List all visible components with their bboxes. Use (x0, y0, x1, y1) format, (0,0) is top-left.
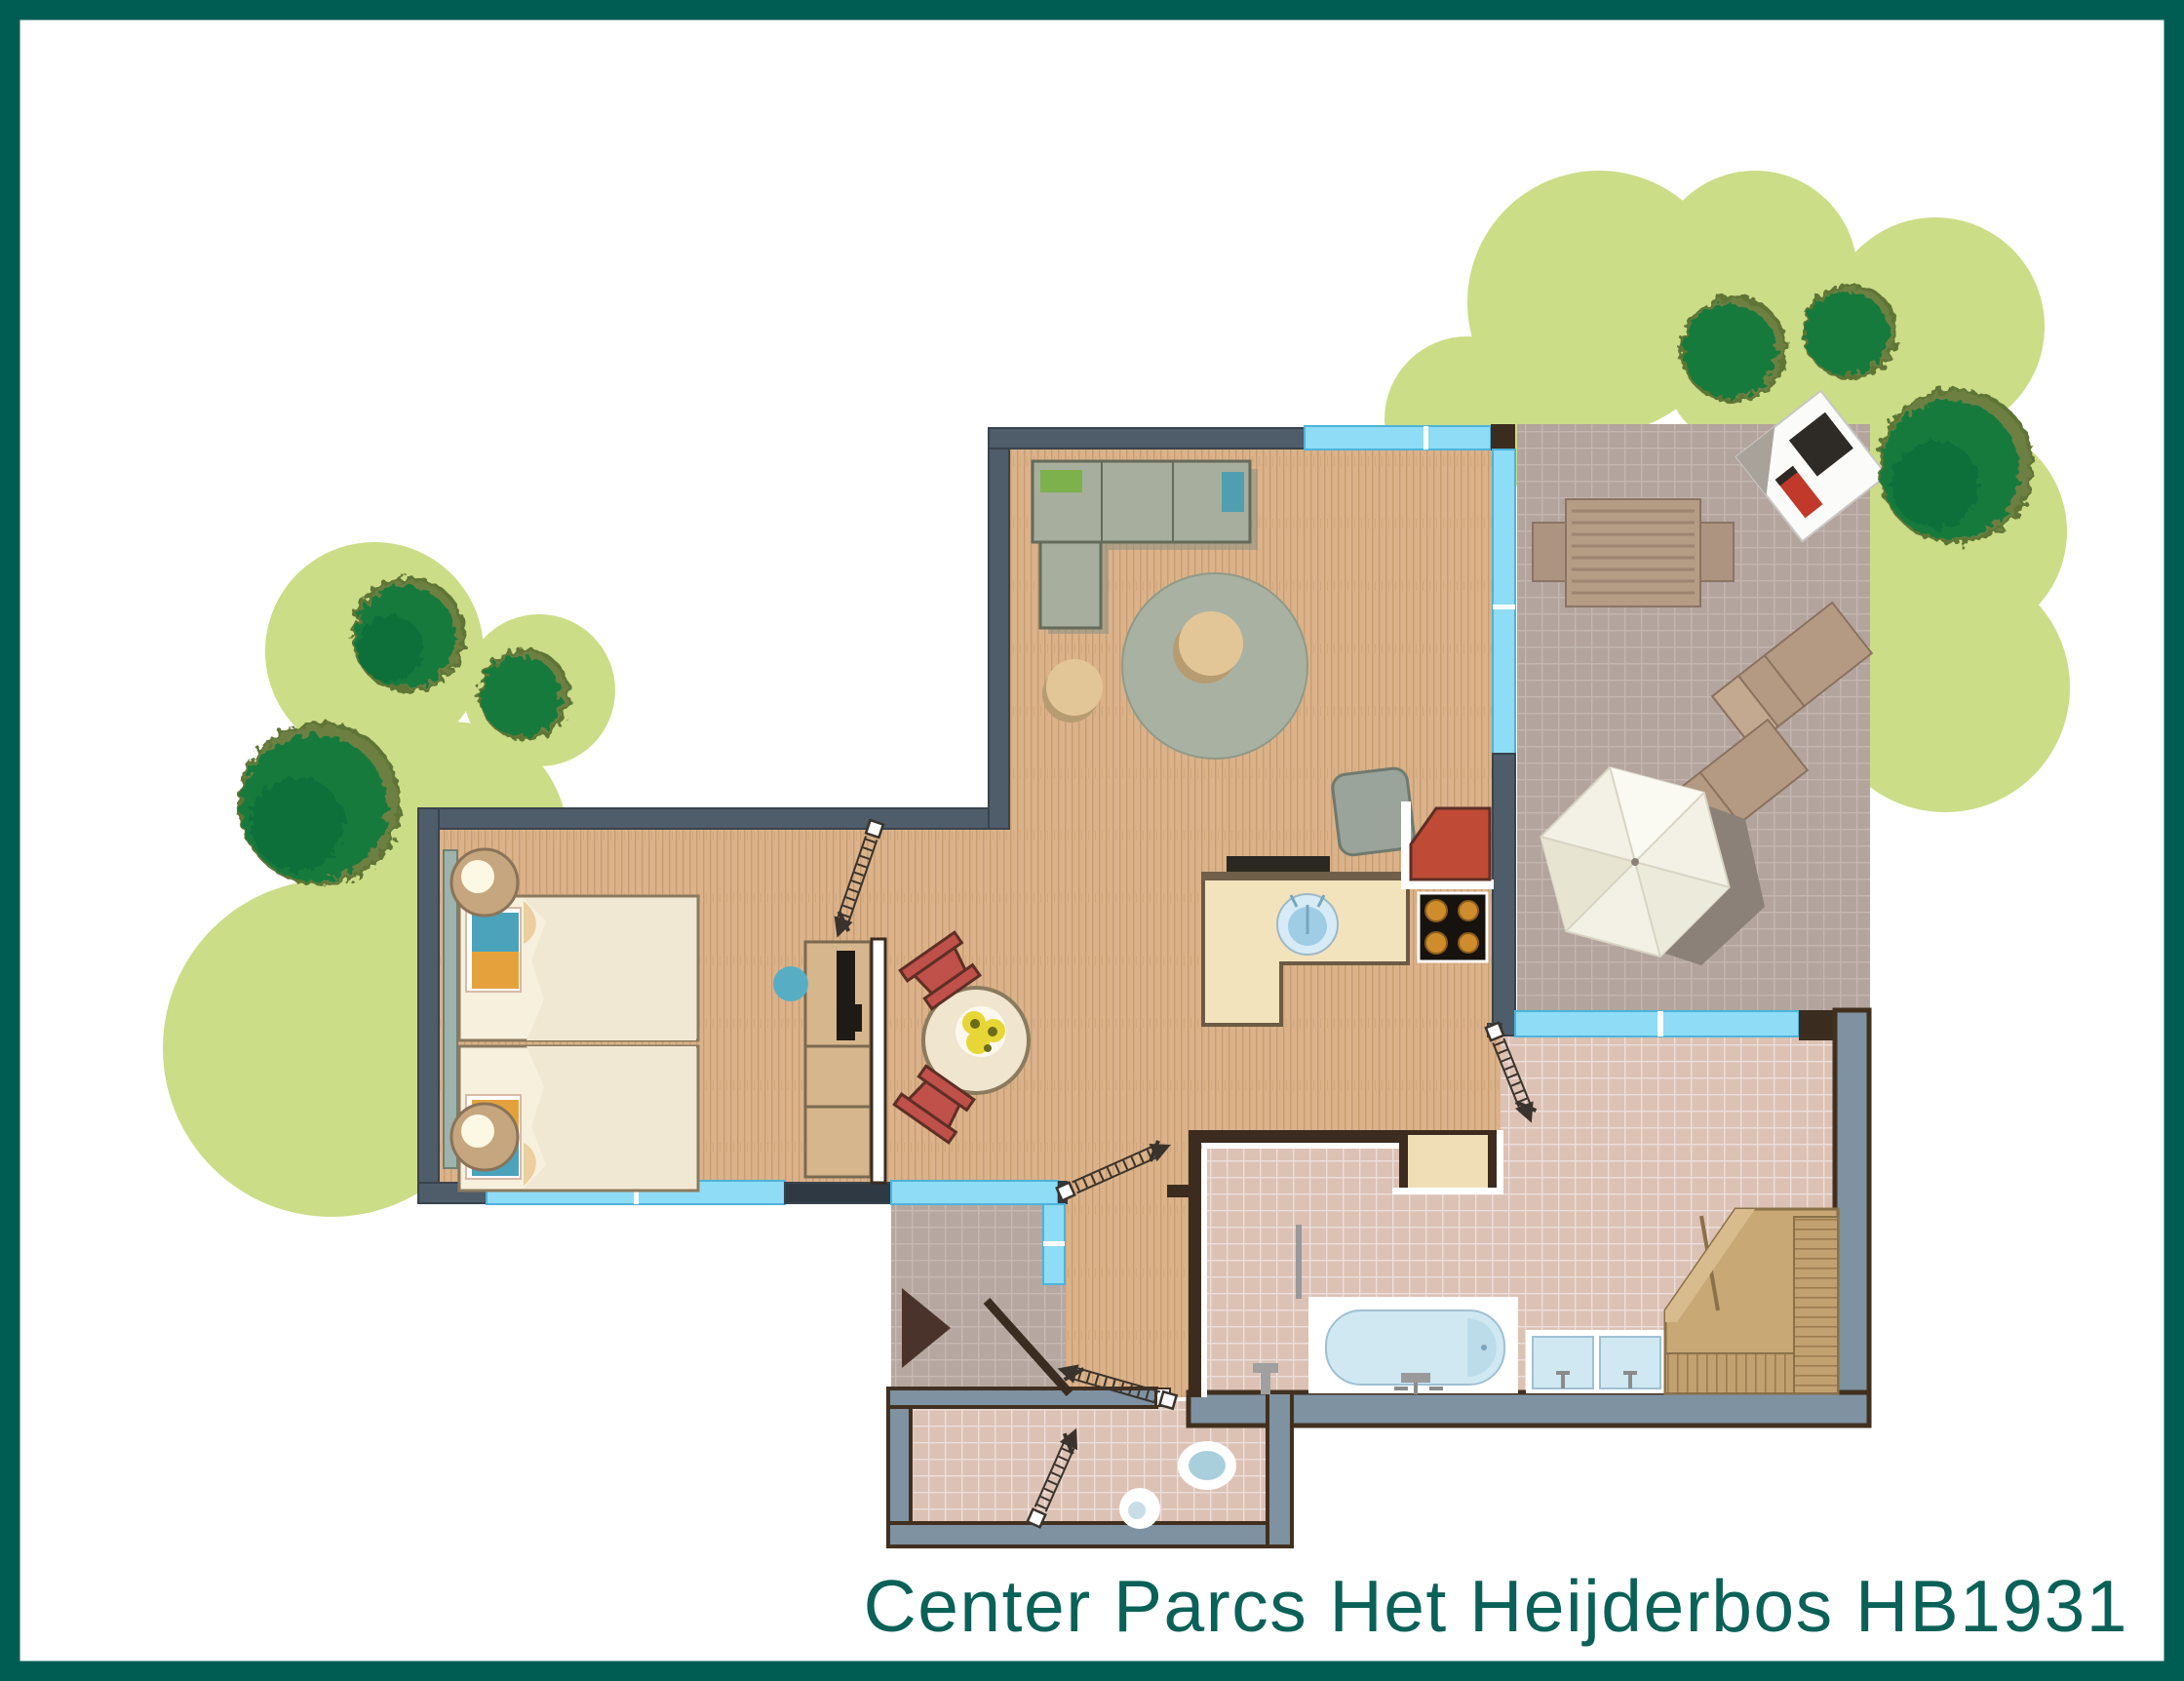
svg-text:Center Parcs Het Heijderbos HB: Center Parcs Het Heijderbos HB1931 (864, 1565, 2128, 1647)
